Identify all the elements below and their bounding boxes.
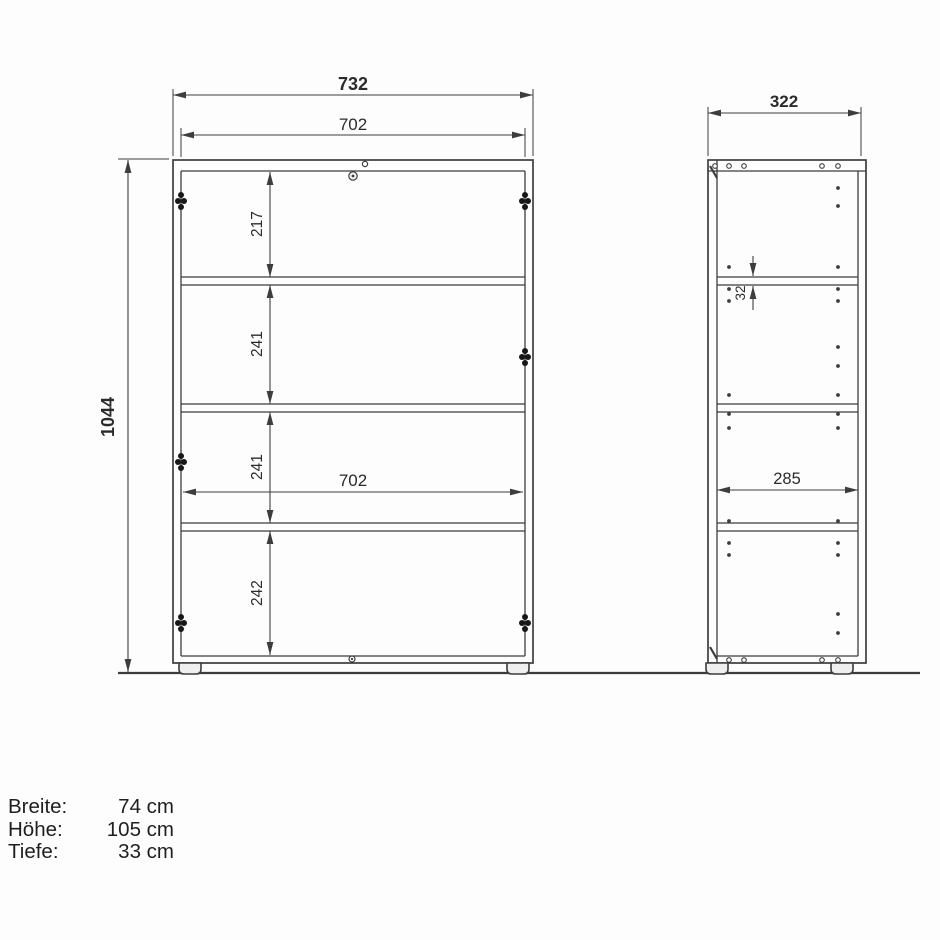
pin-hole (836, 612, 840, 616)
dim-label-shelf-thickness: 32 (733, 285, 748, 300)
dim-label-section-1: 217 (249, 211, 266, 237)
side-view-group (706, 160, 866, 674)
screw-icon (742, 658, 747, 663)
pin-hole (727, 541, 731, 545)
cam-lock-center-icon (352, 175, 355, 178)
front-left-foot (179, 663, 201, 674)
pin-holes-group (727, 186, 840, 635)
dim-label-section-3: 241 (249, 454, 266, 480)
pin-hole (836, 287, 840, 291)
front-dimensions-group (118, 89, 533, 672)
hinge-icon (519, 192, 531, 210)
spec-value: 105 cm (104, 819, 174, 842)
screw-icon (727, 658, 732, 663)
screw-holes-group (713, 164, 841, 663)
dimension-drawing-page: 732 702 1044 217 241 241 242 702 322 285… (0, 0, 940, 940)
pin-hole (836, 412, 840, 416)
bottom-fixing-center-icon (351, 658, 353, 660)
hinge-icon (519, 348, 531, 366)
hinge-icon (519, 614, 531, 632)
front-right-foot (507, 663, 529, 674)
pin-hole (836, 186, 840, 190)
dim-label-depth-inner: 285 (773, 470, 801, 488)
spec-row-breite: Breite: 74 cm (8, 796, 174, 819)
pin-hole (836, 265, 840, 269)
pin-hole (836, 541, 840, 545)
spec-value: 74 cm (104, 796, 174, 819)
pin-hole (727, 265, 731, 269)
dim-label-section-4: 242 (249, 580, 266, 606)
pin-hole (836, 553, 840, 557)
hinge-icon (175, 192, 187, 210)
screw-icon (727, 164, 732, 169)
spec-label: Breite: (8, 796, 104, 819)
pin-hole (727, 412, 731, 416)
pin-hole (836, 426, 840, 430)
dim-label-section-2: 241 (249, 331, 266, 357)
screw-icon (836, 164, 841, 169)
spec-table: Breite: 74 cm Höhe: 105 cm Tiefe: 33 cm (8, 796, 174, 864)
pin-hole (836, 393, 840, 397)
screw-icon (836, 658, 841, 663)
pin-hole (727, 519, 731, 523)
pin-hole (836, 299, 840, 303)
screw-icon (820, 658, 825, 663)
side-back-foot (831, 663, 853, 674)
screw-icon (742, 164, 747, 169)
pin-hole (727, 393, 731, 397)
spec-value: 33 cm (104, 841, 174, 864)
pin-hole (836, 204, 840, 208)
pin-hole (836, 519, 840, 523)
dim-label-width-inner-mid: 702 (339, 471, 367, 490)
door-hinge-mark-icon (710, 647, 717, 659)
dim-label-depth-outer: 322 (770, 92, 798, 111)
spec-label: Tiefe: (8, 841, 104, 864)
dim-label-width-outer: 732 (338, 74, 368, 94)
screw-icon (820, 164, 825, 169)
screw-icon (713, 164, 718, 169)
side-front-foot (706, 663, 728, 674)
pin-hole (727, 299, 731, 303)
spec-row-hoehe: Höhe: 105 cm (8, 819, 174, 842)
hinge-icon (175, 453, 187, 471)
pin-hole (836, 631, 840, 635)
front-view-group (173, 160, 533, 674)
pin-hole (727, 553, 731, 557)
pin-hole (727, 287, 731, 291)
spec-label: Höhe: (8, 819, 104, 842)
technical-drawing: 732 702 1044 217 241 241 242 702 322 285… (0, 0, 940, 700)
top-fixing-hole-icon (362, 161, 367, 166)
hinge-icon (175, 614, 187, 632)
dim-label-width-inner-top: 702 (339, 115, 367, 134)
pin-hole (836, 364, 840, 368)
dimension-labels-group: 732 702 1044 217 241 241 242 702 322 285… (98, 74, 801, 606)
dim-label-height-total: 1044 (98, 397, 118, 437)
pin-hole (727, 426, 731, 430)
spec-row-tiefe: Tiefe: 33 cm (8, 841, 174, 864)
pin-hole (836, 345, 840, 349)
